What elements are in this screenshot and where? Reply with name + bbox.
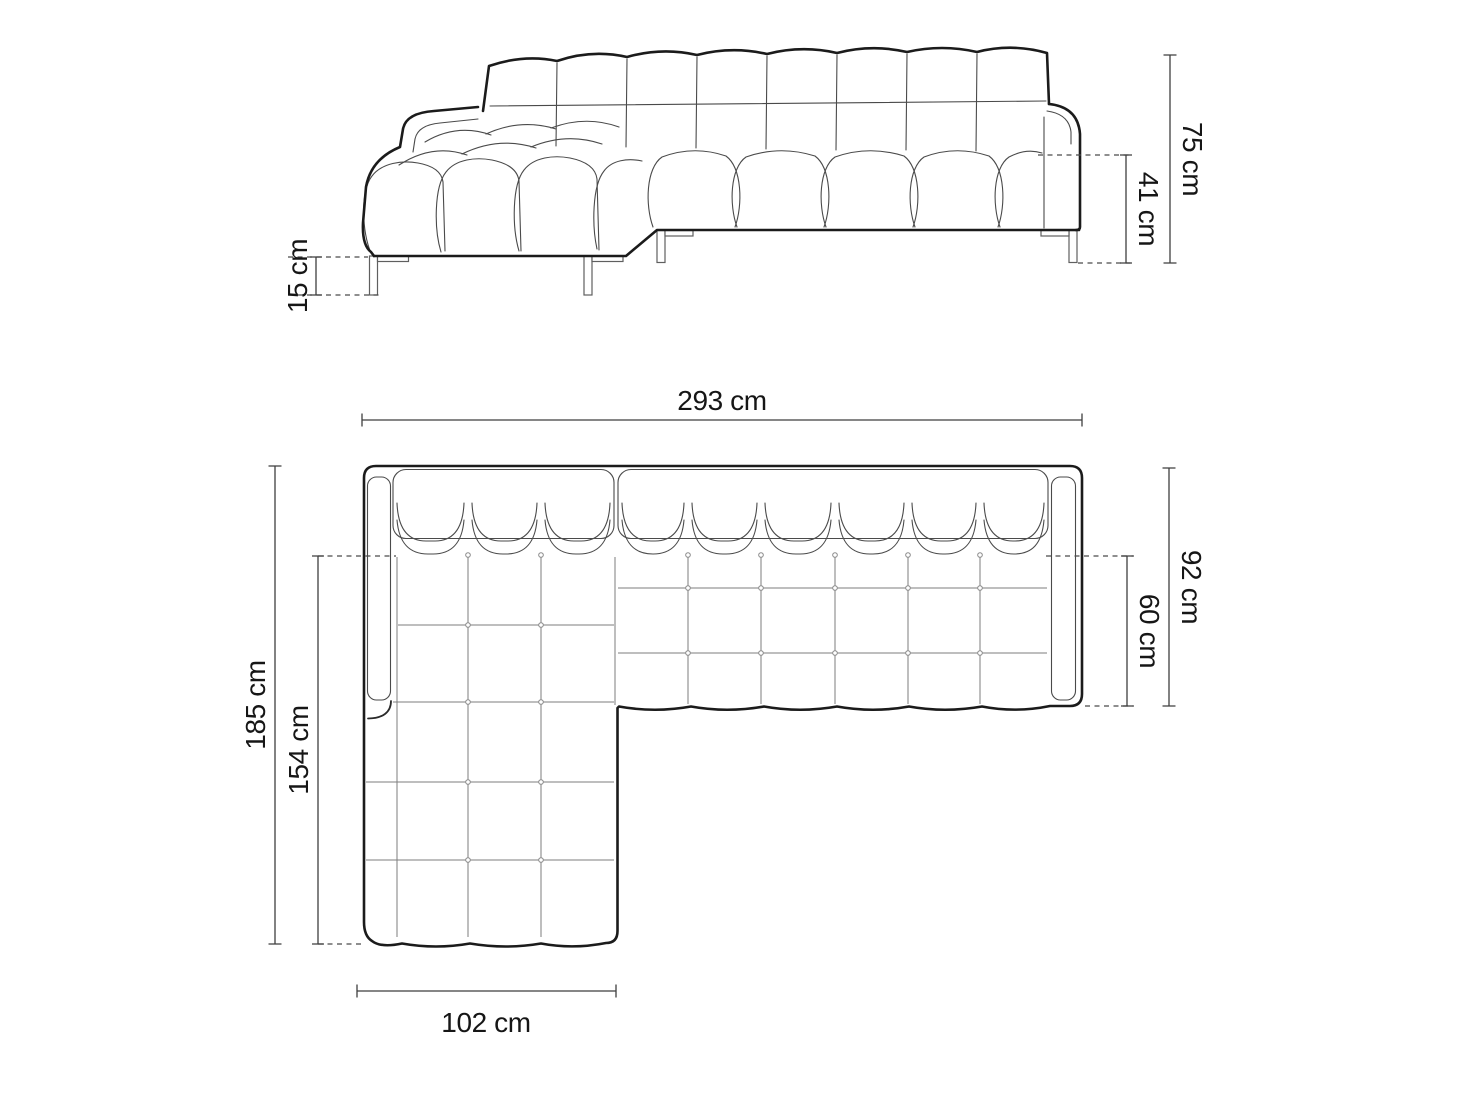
seat-grid (366, 557, 1047, 937)
left-arm-pad (368, 477, 391, 700)
dimension-total-width: 293 cm (362, 385, 1082, 427)
dimension-seat-height: 41 cm (1038, 155, 1164, 263)
dimension-chaise-width: 102 cm (357, 985, 616, 1039)
sofa-leg (1041, 231, 1077, 263)
dim-label-total-depth: 185 cm (240, 660, 271, 749)
dim-label-leg-height: 15 cm (282, 239, 313, 313)
side-view-cushion-details (364, 54, 1071, 253)
dim-label-chaise-width: 102 cm (441, 1007, 530, 1038)
dim-label-seat-depth: 60 cm (1134, 594, 1165, 668)
sofa-right-arm-outline (1049, 104, 1080, 230)
sofa-leg (657, 231, 693, 263)
dimension-leg-height: 15 cm (282, 239, 379, 313)
chaise-back-pillow (393, 470, 614, 539)
side-view-legs (370, 231, 1078, 296)
sofa-leg (584, 256, 623, 295)
top-view: 293 cm 185 cm 154 cm 102 cm 92 cm 60 cm (240, 385, 1207, 1038)
dimension-body-depth: 92 cm (1163, 468, 1208, 706)
diagram-canvas: 75 cm 41 cm 15 cm (0, 0, 1459, 1094)
sofa-leg (370, 256, 409, 295)
side-view: 75 cm 41 cm 15 cm (282, 48, 1208, 313)
dimension-total-depth: 185 cm (240, 466, 282, 944)
dim-label-body-depth: 92 cm (1176, 550, 1207, 624)
right-arm-pad (1052, 477, 1076, 700)
left-arm-cap (368, 701, 391, 719)
top-view-details (366, 470, 1076, 938)
dimension-seat-depth: 60 cm (1046, 556, 1165, 706)
sofa-base-line (374, 230, 1079, 256)
dim-label-total-width: 293 cm (677, 385, 766, 416)
dimension-total-height: 75 cm (1164, 55, 1209, 263)
dim-label-chaise-depth: 154 cm (283, 705, 314, 794)
dim-label-seat-height: 41 cm (1133, 172, 1164, 246)
sofa-dimension-diagram: 75 cm 41 cm 15 cm (0, 0, 1459, 1094)
dimension-chaise-depth: 154 cm (283, 556, 396, 944)
dim-label-total-height: 75 cm (1177, 122, 1208, 196)
